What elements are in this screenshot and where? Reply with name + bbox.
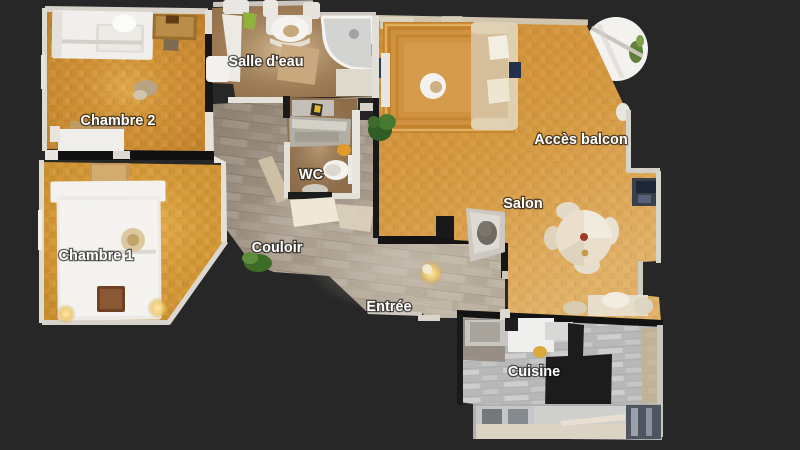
svg-text:Accès balcon: Accès balcon: [534, 132, 628, 148]
svg-text:Salle d'eau: Salle d'eau: [228, 54, 303, 70]
svg-text:Chambre 2: Chambre 2: [81, 113, 156, 129]
svg-text:Chambre 1: Chambre 1: [59, 248, 134, 264]
svg-text:Salon: Salon: [503, 196, 542, 212]
svg-text:Cuisine: Cuisine: [508, 364, 560, 380]
svg-text:Couloir: Couloir: [252, 240, 303, 256]
svg-text:Entrée: Entrée: [366, 299, 411, 315]
svg-text:WC: WC: [299, 167, 324, 183]
